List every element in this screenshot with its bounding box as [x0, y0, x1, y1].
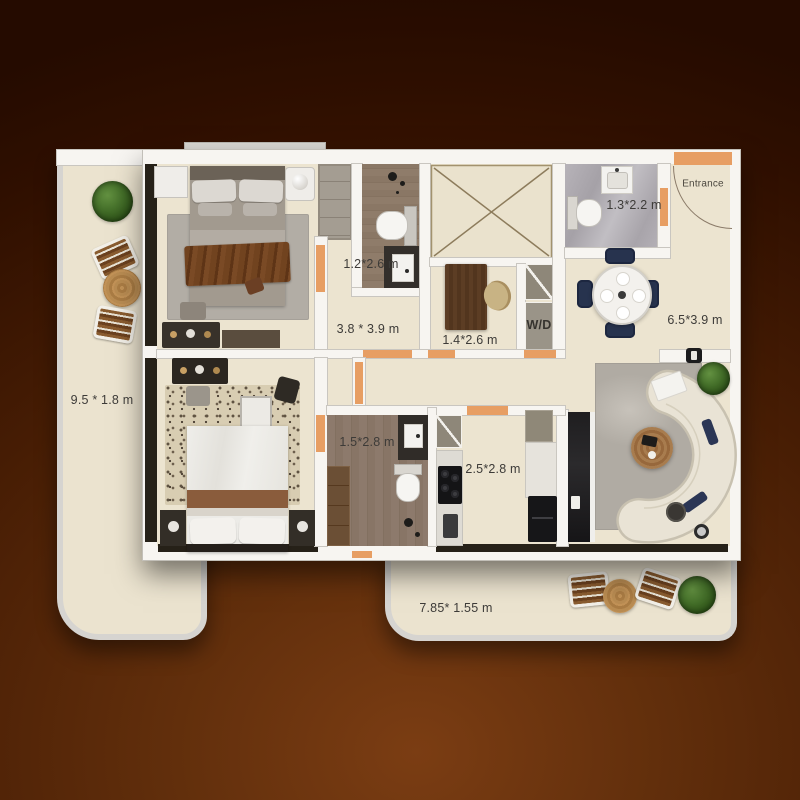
bedroom2-nightstand — [289, 510, 315, 546]
bedroom1-bed — [190, 166, 285, 306]
bed1-blanket — [184, 242, 291, 287]
bed1-headboard — [190, 166, 285, 180]
kitchen-upper-cabinet — [525, 410, 553, 442]
lamp-dot — [168, 521, 179, 532]
plate-icon — [616, 272, 630, 286]
entrance-door-marker — [674, 152, 732, 165]
laundry-label: W/D — [527, 318, 552, 332]
study-desk — [445, 264, 487, 330]
door-marker — [352, 551, 372, 558]
plate-icon — [600, 289, 614, 303]
bed2-headboard — [187, 544, 288, 552]
living-plant-icon — [697, 362, 730, 395]
bed2-pillow — [190, 517, 237, 545]
bedroom1-side-panel — [222, 330, 280, 348]
door-marker — [355, 362, 363, 404]
toilet-bowl — [396, 473, 420, 502]
bathroom2-toilet — [567, 196, 601, 228]
entrance-label: Entrance — [682, 179, 724, 190]
living-label: 6.5*3.9 m — [667, 313, 722, 327]
kitchen-door-marker — [467, 406, 508, 415]
wall — [553, 164, 565, 358]
wall — [517, 264, 525, 350]
bed2-blanket-band — [187, 490, 288, 508]
plate-icon — [616, 306, 630, 320]
balcony-left-plant-icon — [92, 181, 133, 222]
bathroom3-label: 1.5*2.8 m — [339, 435, 394, 449]
bathroom3-vanity — [398, 415, 428, 460]
door-marker — [363, 350, 412, 358]
wall — [157, 350, 565, 358]
decor-dot — [186, 329, 195, 338]
wall — [428, 408, 436, 546]
wall — [315, 358, 327, 546]
decor-dot — [195, 365, 204, 374]
bedroom1-nightstand-right — [285, 167, 315, 201]
kitchen-island — [568, 412, 595, 542]
bed2-sheet — [187, 508, 288, 516]
bathroom2-label: 1.3*2.2 m — [606, 198, 661, 212]
coffee-table — [631, 427, 673, 469]
fridge-handle — [532, 517, 553, 519]
decor-dot — [170, 331, 177, 338]
burner — [451, 490, 459, 498]
bedroom2-window — [145, 358, 157, 542]
bedroom1-nightstand-left — [154, 166, 188, 198]
faucet-dot — [405, 269, 409, 273]
bathroom3-cabinet — [327, 466, 350, 546]
bed1-pillow-small — [243, 203, 277, 216]
kitchen-pantry — [436, 415, 462, 448]
utility-closet — [525, 264, 553, 300]
bedroom2-bed — [187, 426, 288, 552]
plate-icon — [632, 289, 646, 303]
bathroom3-door-marker — [316, 415, 325, 452]
burner — [441, 470, 449, 478]
bed2-duvet — [187, 426, 288, 490]
bed1-pillow — [239, 179, 284, 203]
balcony-left-table-icon — [103, 269, 141, 307]
burner — [441, 484, 449, 492]
balcony-left-label: 9.5 * 1.8 m — [71, 393, 134, 407]
bedroom1-console — [162, 322, 220, 348]
island-decor — [571, 496, 580, 509]
bedroom2-dresser — [172, 358, 228, 384]
sofa-side-table — [666, 502, 686, 522]
shower-head-icon — [404, 518, 413, 527]
bed1-pillow-small — [198, 203, 232, 216]
lamp-dot — [297, 521, 308, 532]
burner — [451, 474, 459, 482]
tray-icon — [641, 435, 658, 448]
centerpiece — [618, 291, 626, 299]
bathroom1-label: 1.2*2.6 m — [343, 257, 398, 271]
kitchen-counter-right — [525, 442, 557, 498]
balcony-left-chair2-icon — [92, 305, 137, 344]
door-marker — [428, 350, 455, 358]
bedroom1-door-marker — [316, 245, 325, 292]
bedroom1-wardrobe — [318, 164, 352, 240]
bathroom3-toilet — [392, 464, 422, 502]
kitchen-sink-unit — [443, 514, 458, 538]
faucet-dot — [615, 168, 619, 172]
shaft-x-icon — [430, 164, 553, 260]
bed2-pillow — [239, 517, 286, 545]
fridge-icon — [528, 496, 557, 542]
bed1-pillow — [192, 179, 237, 203]
bedroom2-mirror — [240, 396, 272, 428]
sink-basin — [607, 172, 628, 189]
floor-lamp-icon — [694, 524, 709, 539]
bedroom1-ottoman — [180, 302, 206, 320]
balcony-bottom-table-icon — [603, 579, 637, 613]
dining-table — [592, 265, 652, 325]
bedroom1-label: 3.8 * 3.9 m — [337, 322, 400, 336]
dining-chair — [577, 280, 593, 308]
decor-dot — [204, 331, 211, 338]
decor-star — [648, 451, 656, 459]
bathroom2-sink — [601, 166, 633, 194]
vase-icon — [292, 174, 308, 190]
decor-dot — [213, 367, 220, 374]
shower-head-icon — [388, 172, 397, 181]
decor-dot — [180, 367, 187, 374]
study-label: 1.4*2.6 m — [442, 333, 497, 347]
bedroom2-nightstand — [160, 510, 186, 546]
faucet-dot — [416, 434, 420, 438]
floor-plan-scene: 9.5 * 1.8 m 3.8 * 3.9 m 1.2*2.6 m 1.4*2.… — [0, 0, 800, 800]
balcony-bottom-plant-icon — [678, 576, 716, 614]
kitchen-label: 2.5*2.8 m — [465, 462, 520, 476]
wall — [352, 164, 362, 294]
bathroom1-toilet — [376, 206, 416, 244]
sink-icon — [404, 424, 423, 448]
balcony-bottom-label: 7.85* 1.55 m — [419, 601, 492, 615]
wall — [352, 288, 420, 296]
dining-chair — [605, 248, 635, 264]
toilet-bowl — [576, 199, 602, 227]
bedroom2-stool — [186, 386, 210, 406]
wall — [420, 164, 430, 358]
toilet-bowl — [376, 211, 408, 240]
cooktop-icon — [438, 466, 462, 504]
wall — [557, 410, 568, 546]
